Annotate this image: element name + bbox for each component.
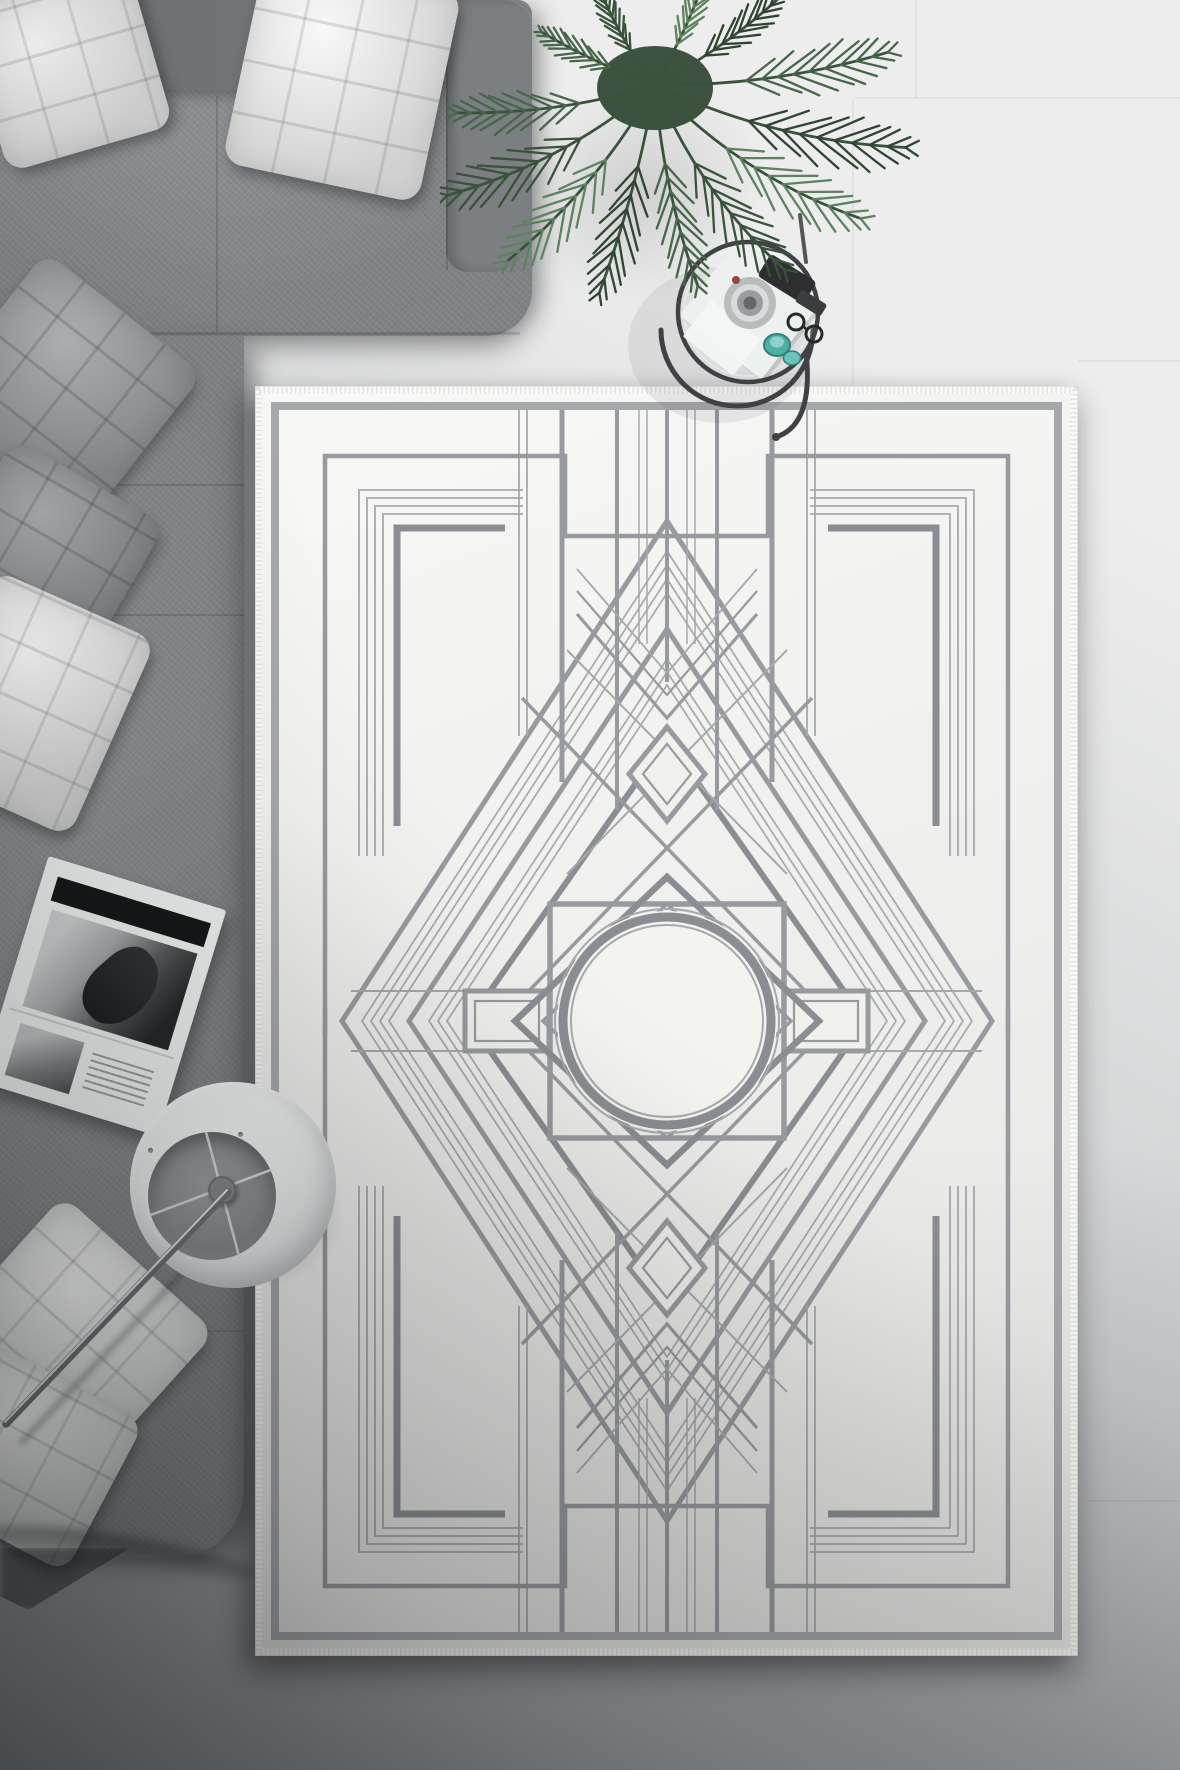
lamp-pole: [0, 1170, 330, 1470]
plant-fronds: [440, 0, 919, 305]
living-room-photo: [0, 0, 1180, 1770]
table-foot: [772, 433, 780, 441]
tile-seam: [1086, 1500, 1180, 1502]
rug-pattern: [255, 386, 1078, 1656]
teal-cup-rim: [770, 337, 784, 348]
magazine-text-lines: [83, 1052, 155, 1107]
magazine-small-photo: [5, 1023, 85, 1094]
art-deco-rug: [255, 386, 1078, 1656]
palm-plant: [440, 0, 920, 330]
tile-seam: [1078, 360, 1180, 362]
sofa-seam: [216, 96, 218, 332]
sofa-floor-shadow: [0, 1548, 130, 1610]
teal-cup-small: [784, 351, 801, 365]
